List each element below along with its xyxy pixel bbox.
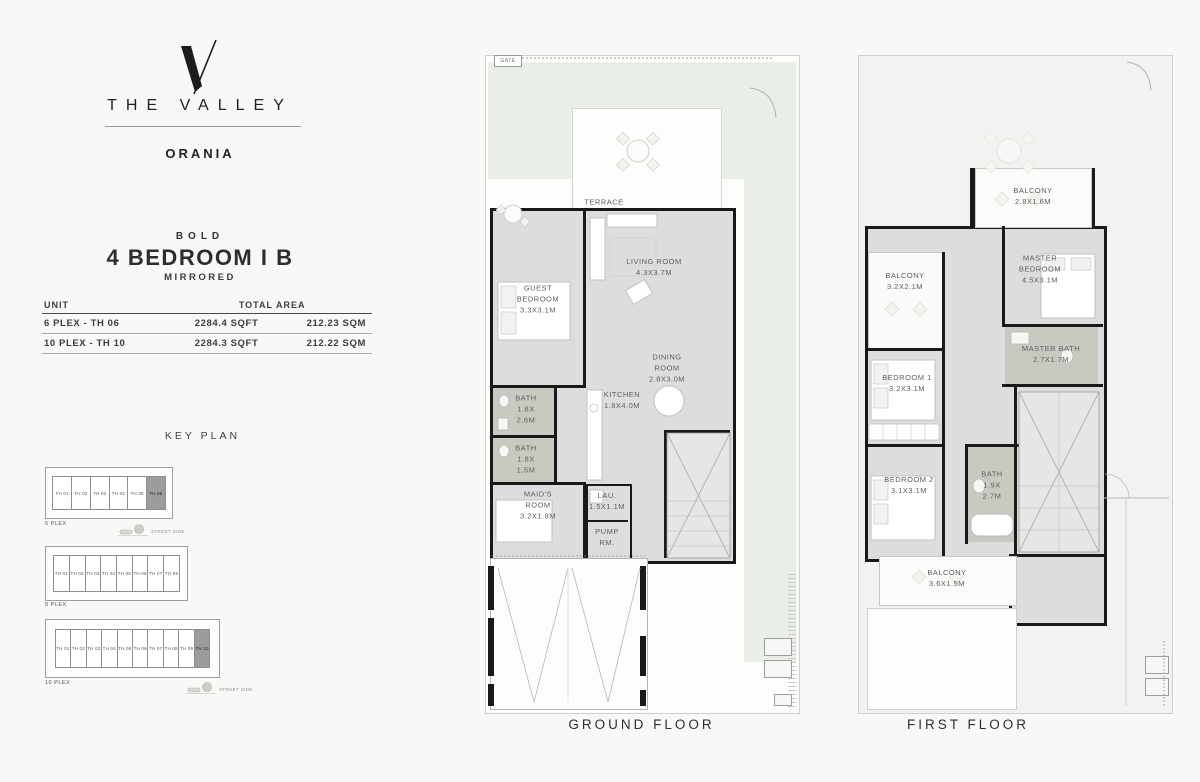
room-label-bedroom2: BEDROOM 2 3.1X3.1M [874,475,944,497]
keyplan-unit-th-10: TH 10 [195,630,209,667]
row-sqft: 2284.3 SQFT [174,338,278,349]
room-label-kitchen: KITCHEN 1.8X4.0M [591,390,653,412]
collection-label: BOLD [75,231,325,242]
car-tree-icon [186,682,216,696]
keyplan-unit-th-05: TH 05 [118,630,133,667]
keyplan-title: KEY PLAN [75,430,330,442]
keyplan-unit-th-05: TH 05 [128,477,147,509]
row-unit: 6 PLEX - TH 06 [44,318,174,329]
keyplan-block-label: 6 PLEX [45,521,67,527]
room-label-bath1: BATH 1.8X 2.6M [510,394,542,427]
room-label-terrace: TERRACE [572,198,636,209]
valley-logo-icon [168,40,228,98]
keyplan-unit-th-03: TH 03 [86,556,102,590]
first-floor-caption: FIRST FLOOR [858,717,1078,732]
row-sqm: 212.23 SQM [279,318,370,329]
keyplan-unit-th-04: TH 04 [110,477,129,509]
col-total-area: TOTAL AREA [174,300,370,310]
keyplan-units-row: TH 01TH 02TH 03TH 04TH 05TH 06 [52,476,165,510]
room-label-pump-room: PUMP RM. [590,527,624,549]
room-label-balcony-top: BALCONY 2.8X1.6M [1002,186,1064,208]
keyplan-unit-th-06: TH 06 [133,556,149,590]
first-floor-plan: BALCONY 2.8X1.6M BALCONY 3.2X2.1M MASTER… [858,55,1173,714]
keyplan-block-6plex: TH 01TH 02TH 03TH 04TH 05TH 06 [45,467,173,519]
brand-community: ORANIA [75,146,325,161]
keyplan-unit-th-03: TH 03 [91,477,110,509]
keyplan-unit-th-08: TH 08 [164,556,179,590]
ground-floor-caption: GROUND FLOOR [485,717,798,732]
street-side-label: STREET SIDE [219,687,253,692]
ground-floor-linework [486,56,799,713]
brand-name: THE VALLEY [75,97,325,115]
room-label-living-room: LIVING ROOM 4.3X3.7M [614,257,694,279]
keyplan-block-label: 8 PLEX [45,602,67,608]
keyplan-unit-th-01: TH 01 [54,556,70,590]
keyplan-unit-th-07: TH 07 [148,556,164,590]
table-row: 6 PLEX - TH 06 2284.4 SQFT 212.23 SQM [42,314,372,334]
room-label-bedroom1: BEDROOM 1 3.2X3.1M [872,373,942,395]
row-sqm: 212.22 SQM [279,338,370,349]
area-table: UNIT TOTAL AREA 6 PLEX - TH 06 2284.4 SQ… [42,297,372,354]
keyplan-unit-th-02: TH 02 [72,477,91,509]
keyplan-unit-th-06: TH 06 [147,477,165,509]
room-label-bath2: BATH 1.8X 1.5M [510,444,542,477]
brand-divider [105,126,301,127]
keyplan-unit-th-09: TH 09 [179,630,194,667]
keyplan-unit-th-04: TH 04 [101,556,117,590]
table-row: 10 PLEX - TH 10 2284.3 SQFT 212.22 SQM [42,334,372,354]
keyplan-units-row: TH 01TH 02TH 03TH 04TH 05TH 06TH 07TH 08 [53,555,180,591]
keyplan-unit-th-08: TH 08 [164,630,179,667]
room-label-balcony-left: BALCONY 3.2X2.1M [874,271,936,293]
ground-floor-plan: GATE [485,55,800,714]
street-side-marker: STREET SIDE [118,524,185,538]
keyplan-unit-th-06: TH 06 [133,630,148,667]
keyplan-block-10plex: TH 01TH 02TH 03TH 04TH 05TH 06TH 07TH 08… [45,619,220,678]
street-side-label: STREET SIDE [151,529,185,534]
unit-title: 4 BEDROOM I B [45,245,355,271]
room-label-master-bath: MASTER BATH 2.7X1.7M [1011,344,1091,366]
row-unit: 10 PLEX - TH 10 [44,338,174,349]
room-label-dining-room: DINING ROOM 2.8X3.0M [644,353,690,386]
keyplan-unit-th-01: TH 01 [56,630,71,667]
unit-variant: MIRRORED [75,272,325,283]
col-unit: UNIT [44,300,174,310]
row-sqft: 2284.4 SQFT [174,318,278,329]
keyplan-unit-th-03: TH 03 [87,630,102,667]
room-label-guest-bedroom: GUEST BEDROOM 3.3X3.1M [509,284,567,317]
keyplan-unit-th-02: TH 02 [70,556,86,590]
keyplan-unit-th-07: TH 07 [148,630,163,667]
area-table-header: UNIT TOTAL AREA [42,297,372,314]
keyplan-unit-th-05: TH 05 [117,556,133,590]
room-label-laundry: LAU. 1.5X1.1M [588,491,626,513]
keyplan-unit-th-04: TH 04 [102,630,117,667]
room-label-maids-room: MAID'S ROOM 3.2X1.8M [514,490,562,523]
room-label-bath: BATH 1.9X 2.7M [977,470,1007,503]
keyplan-unit-th-02: TH 02 [71,630,86,667]
street-side-marker: STREET SIDE [186,682,253,696]
brochure-page: THE VALLEY ORANIA BOLD 4 BEDROOM I B MIR… [0,0,1200,782]
room-label-master-bedroom: MASTER BEDROOM 4.5X3.1M [1009,254,1071,287]
keyplan-block-label: 10 PLEX [45,680,70,686]
room-label-balcony-bottom: BALCONY 3.6X1.5M [916,568,978,590]
keyplan-block-8plex: TH 01TH 02TH 03TH 04TH 05TH 06TH 07TH 08 [45,546,188,601]
car-tree-icon [118,524,148,538]
keyplan-unit-th-01: TH 01 [53,477,72,509]
keyplan-units-row: TH 01TH 02TH 03TH 04TH 05TH 06TH 07TH 08… [55,629,211,668]
